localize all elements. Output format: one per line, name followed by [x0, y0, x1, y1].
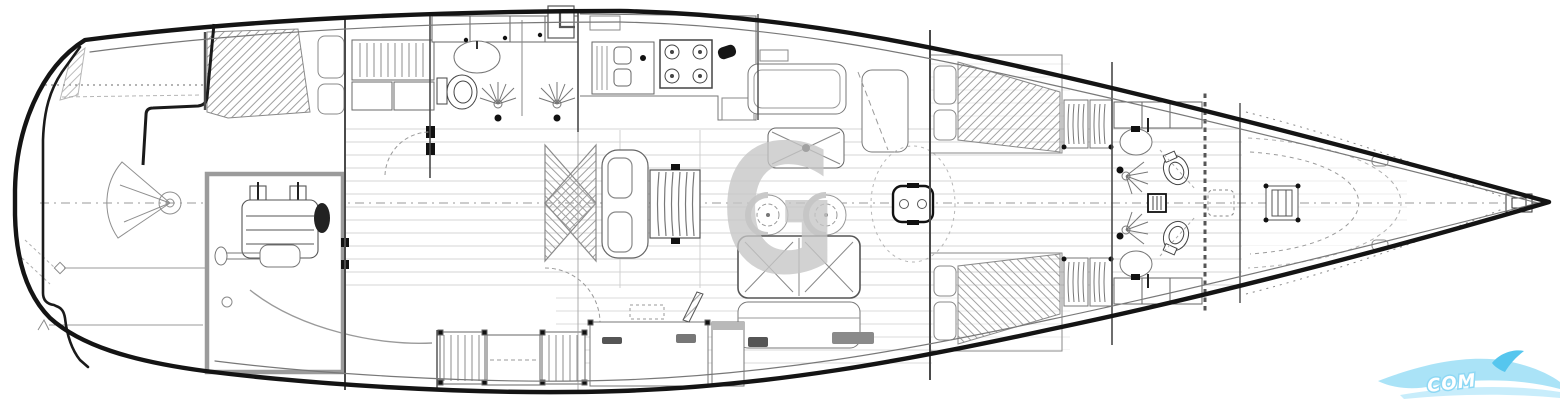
lazarette — [22, 48, 205, 330]
berth-icon — [207, 29, 310, 118]
pillow-icon — [318, 84, 344, 114]
deck-hatch-icon — [590, 16, 620, 30]
kettle-icon — [717, 44, 738, 61]
label-block — [602, 337, 622, 344]
shelf — [760, 50, 788, 61]
pillow-icon — [318, 36, 344, 78]
windlass-icon — [1264, 184, 1301, 223]
locker-grate — [832, 332, 874, 344]
stair-treads-icon — [650, 164, 700, 244]
chart-table — [858, 70, 908, 152]
steering-quadrant-icon — [107, 162, 181, 238]
step-locker-icon — [352, 40, 434, 110]
rudder-stock-line — [54, 262, 205, 273]
helm-seat-icon — [602, 150, 648, 258]
label-block — [676, 334, 696, 343]
pillow-icon — [934, 66, 956, 104]
toilet-icon — [437, 75, 477, 109]
watermark-letter: G — [720, 107, 838, 314]
deck-plan-drawing: G COM — [0, 0, 1560, 408]
floor-grate-icon — [1148, 194, 1166, 212]
stove-icon — [660, 40, 712, 88]
shower-spray-icon — [539, 82, 575, 122]
yacht-deck-plan: G COM — [0, 0, 1560, 408]
galley-sink-icon — [592, 42, 654, 94]
shower-spray-icon — [480, 82, 516, 122]
site-logo-watermark: COM — [1378, 350, 1560, 399]
wardrobe-icon — [1062, 100, 1114, 150]
pillow-icon — [934, 110, 956, 140]
mast-icon — [893, 183, 933, 225]
wave-icon — [1400, 387, 1560, 399]
label-block — [748, 337, 768, 347]
